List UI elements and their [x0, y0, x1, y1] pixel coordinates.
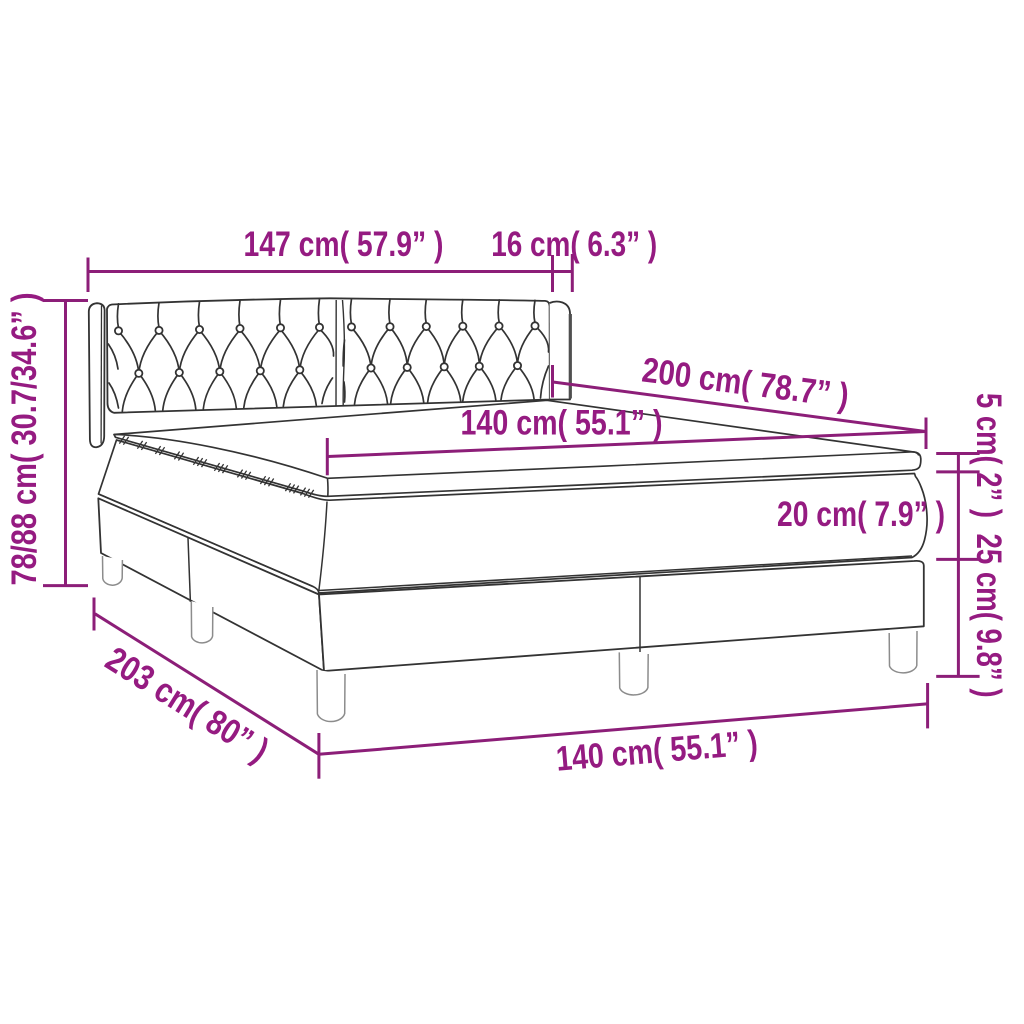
svg-text:140 cm( 55.1” ): 140 cm( 55.1” )	[461, 404, 663, 443]
svg-text:78/88 cm( 30.7/34.6” ): 78/88 cm( 30.7/34.6” )	[5, 293, 44, 586]
svg-text:20 cm( 7.9” ): 20 cm( 7.9” )	[777, 495, 945, 534]
svg-text:25 cm( 9.8” ): 25 cm( 9.8” )	[969, 534, 1008, 698]
svg-text:16 cm( 6.3” ): 16 cm( 6.3” )	[491, 225, 657, 264]
svg-text:5 cm( 2” ): 5 cm( 2” )	[969, 393, 1008, 518]
svg-text:147 cm( 57.9” ): 147 cm( 57.9” )	[244, 225, 444, 264]
